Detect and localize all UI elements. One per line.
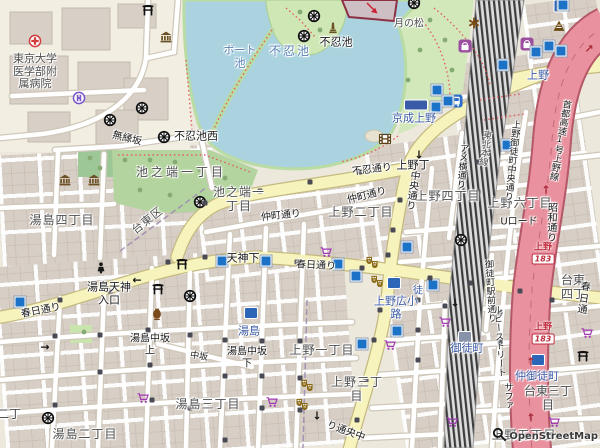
map-base-layer <box>0 0 600 448</box>
magnifier-icon <box>492 427 507 445</box>
attribution-text: OpenStreetMap <box>509 431 598 442</box>
osm-attribution[interactable]: OpenStreetMap <box>492 427 598 445</box>
map-canvas[interactable]: ←↓↓↓→↑↑↑↗上野183上野183東京大学 医学部附 属病院無縁坂不忍池西池… <box>0 0 600 448</box>
